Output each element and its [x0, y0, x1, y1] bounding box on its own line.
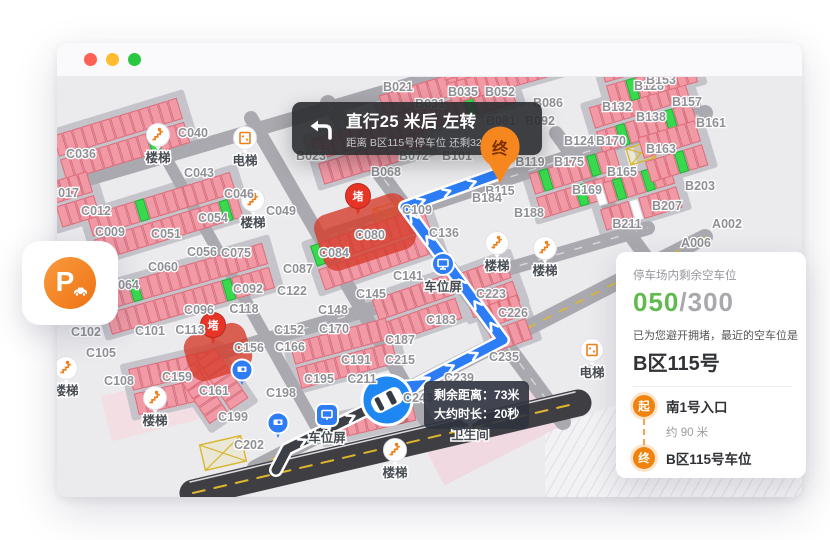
zone-label: C235 [489, 350, 519, 364]
destination-pin-label: 终 [492, 139, 509, 158]
zone-label: C096 [184, 303, 214, 317]
zone-label: B184 [472, 191, 502, 205]
remaining-spots-label: 停车场内剩余空车位 [633, 267, 792, 283]
parking-car-icon [72, 285, 89, 297]
zone-label: C161 [199, 384, 229, 398]
parking-icon: P [44, 257, 96, 309]
remaining-time-value: 20秒 [494, 407, 519, 421]
route-connector-line [643, 419, 645, 445]
zone-label: B163 [646, 142, 676, 156]
zone-label: C141 [393, 269, 423, 283]
zone-label: C092 [233, 282, 263, 296]
zone-label: B203 [685, 179, 715, 193]
zone-label: C054 [198, 211, 228, 225]
zone-label: A002 [712, 217, 742, 231]
zone-label: B153 [646, 77, 676, 87]
remaining-time-row: 大约时长：20秒 [434, 405, 519, 424]
zone-label: A006 [681, 236, 711, 250]
zone-label: C108 [104, 374, 134, 388]
zone-label: B124 [564, 134, 594, 148]
route-distance-row: 约 90 米 [633, 417, 792, 447]
zone-label: C199 [218, 410, 248, 424]
zone-label: C012 [81, 204, 111, 218]
zone-label: B207 [652, 199, 682, 213]
zone-label: B188 [514, 206, 544, 220]
route-start-badge: 起 [633, 395, 655, 417]
zone-label: C226 [498, 306, 528, 320]
poi-label: 车位屏 [308, 430, 346, 445]
zone-label: C046 [224, 187, 254, 201]
remaining-spots-count: 050/300 [633, 287, 792, 318]
parking-app-card[interactable]: P [22, 241, 118, 325]
zone-label: C122 [277, 284, 307, 298]
poi-label: 楼梯 [382, 465, 408, 480]
poi-label: 卫生间 [451, 427, 489, 442]
poi-label: 楼梯 [145, 150, 171, 165]
elevator-marker[interactable] [234, 127, 257, 150]
parking-screen-marker[interactable] [316, 404, 338, 426]
poi-label: 电梯 [232, 153, 258, 168]
minimize-window-button[interactable] [106, 53, 119, 66]
elevator-marker[interactable] [581, 339, 604, 362]
zone-label: C159 [162, 370, 192, 384]
zone-label: C075 [221, 246, 251, 260]
zone-label: C136 [429, 226, 459, 240]
zone-label: C043 [184, 166, 214, 180]
instruction-text: 直行25 米后 左转 距离 B区115号停车位 还剩32 米 [346, 108, 495, 150]
window-titlebar [57, 43, 802, 77]
poi-label: 楼梯 [532, 263, 558, 278]
zone-label: C080 [355, 228, 385, 242]
zone-label: B175 [554, 155, 584, 169]
zone-label: B165 [607, 165, 637, 179]
zone-label: C191 [341, 353, 371, 367]
zone-label: B170 [596, 134, 626, 148]
zone-label: C102 [71, 325, 101, 339]
zone-label: C049 [266, 204, 296, 218]
route-start-row: 起 南1号入口 [633, 395, 792, 417]
zone-label: C187 [385, 333, 415, 347]
close-window-button[interactable] [84, 53, 97, 66]
parking-screen-marker[interactable] [432, 253, 454, 275]
free-count: 050 [633, 287, 679, 317]
poi-label: 车位屏 [424, 279, 462, 294]
zone-label: C156 [234, 341, 264, 355]
zone-label: C017 [57, 186, 79, 200]
zone-label: C113 [175, 323, 204, 337]
route-end-name: B区115号车位 [666, 448, 752, 468]
poi-label: 楼梯 [57, 383, 79, 398]
zone-label: B211 [612, 217, 641, 231]
zone-label: B157 [672, 95, 702, 109]
zoom-window-button[interactable] [128, 53, 141, 66]
poi-label: 楼梯 [142, 413, 168, 428]
assigned-spot-name: B区115号 [633, 347, 792, 376]
zone-label: C060 [148, 260, 178, 274]
turn-left-arrow-icon [307, 115, 335, 143]
zone-label: B021 [383, 80, 413, 94]
zone-label: C101 [135, 324, 165, 338]
car-status-tooltip: 剩余距离：73米 大约时长：20秒 [424, 381, 529, 429]
zone-label: B068 [371, 165, 401, 179]
remaining-distance-value: 73米 [494, 388, 519, 402]
zone-label: C145 [356, 287, 386, 301]
zone-label: C195 [304, 372, 334, 386]
page: { "window": { "traffic_lights": [ {"name… [0, 0, 830, 540]
zone-label: C223 [476, 287, 506, 301]
parking-info-panel: 停车场内剩余空车位 050/300 已为您避开拥堵，最近的空车位是 B区115号… [616, 252, 806, 478]
zone-label: C152 [274, 323, 304, 337]
zone-label: B138 [636, 110, 666, 124]
congestion-pin-label: 堵 [353, 189, 364, 203]
poi-label: 电梯 [579, 365, 605, 380]
panel-divider [633, 386, 792, 387]
zone-label: C211 [347, 372, 376, 386]
count-separator: / [679, 287, 687, 317]
route-distance: 约 90 米 [666, 424, 708, 440]
congestion-pin-label: 堵 [208, 318, 219, 332]
zone-label: C036 [66, 147, 96, 161]
zone-label: B161 [696, 116, 726, 130]
route-end-badge: 终 [633, 447, 655, 469]
instruction-title: 直行25 米后 左转 [346, 108, 495, 132]
remaining-distance-row: 剩余距离：73米 [434, 386, 519, 405]
zone-label: B052 [485, 85, 515, 99]
zone-label: C040 [178, 126, 208, 140]
zone-label: C148 [318, 303, 348, 317]
zone-label: B035 [448, 85, 478, 99]
poi-label: 楼梯 [240, 215, 266, 230]
zone-label: C109 [402, 203, 432, 217]
zone-label: C105 [86, 346, 116, 360]
poi-label: 楼梯 [484, 258, 510, 273]
zone-label: B132 [602, 100, 632, 114]
zone-label: C215 [385, 353, 415, 367]
zone-label: C166 [275, 340, 305, 354]
zone-label: C202 [234, 438, 264, 452]
zone-label: B169 [572, 183, 602, 197]
zone-label: C118 [229, 302, 258, 316]
destination-pin[interactable]: 终 [478, 126, 522, 186]
zone-label: C183 [426, 313, 456, 327]
route-start-name: 南1号入口 [666, 396, 728, 416]
zone-label: C084 [319, 246, 349, 260]
zone-label: C087 [283, 262, 313, 276]
avoid-congestion-text: 已为您避开拥堵，最近的空车位是 [633, 327, 792, 343]
route-end-row: 终 B区115号车位 [633, 447, 792, 469]
zone-label: C009 [95, 225, 125, 239]
total-count: 300 [688, 287, 734, 317]
zone-label: C051 [151, 227, 181, 241]
zone-label: C170 [319, 322, 349, 336]
zone-label: C198 [266, 386, 296, 400]
instruction-subtitle: 距离 B区115号停车位 还剩32 米 [346, 135, 495, 150]
zone-label: C056 [187, 245, 217, 259]
